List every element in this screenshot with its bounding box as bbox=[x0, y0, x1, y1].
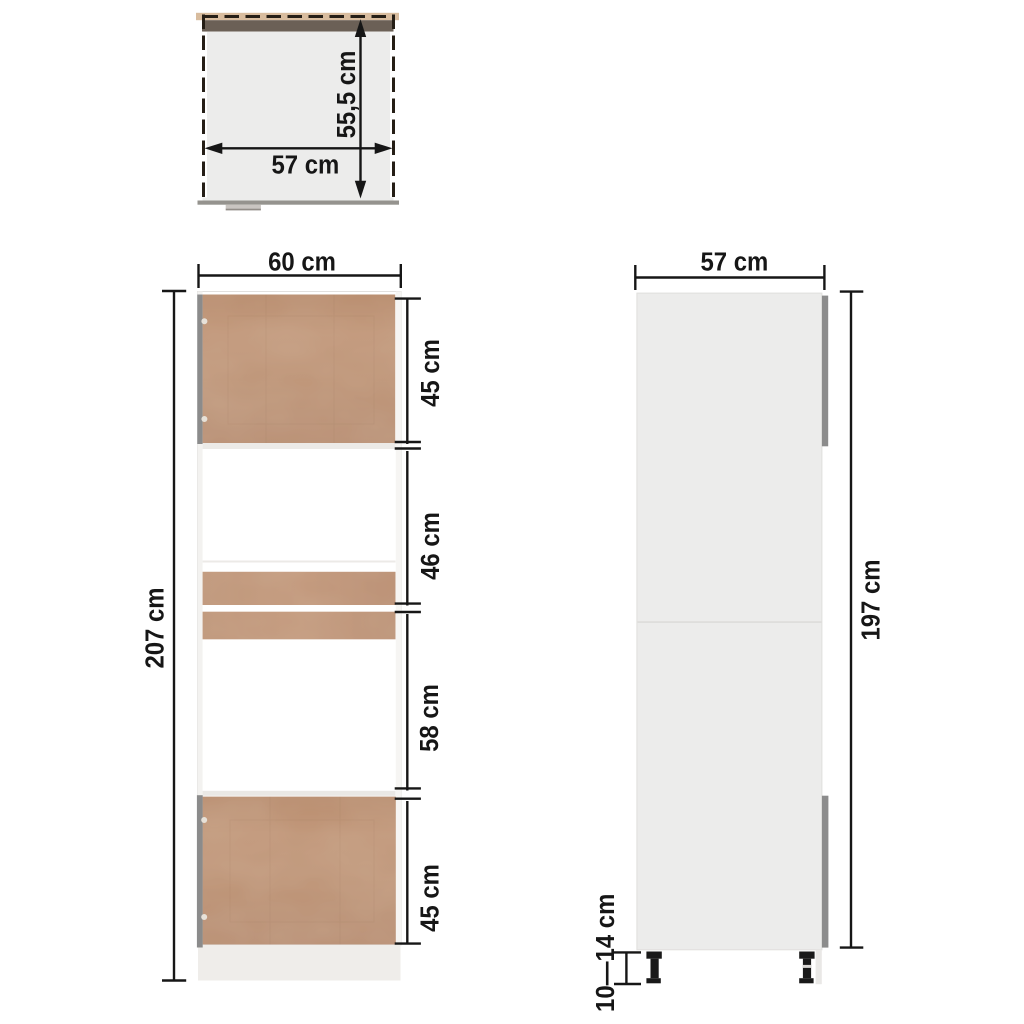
svg-text:197 cm: 197 cm bbox=[857, 559, 886, 640]
svg-text:46 cm: 46 cm bbox=[416, 512, 445, 580]
svg-text:57 cm: 57 cm bbox=[271, 150, 339, 179]
svg-text:207 cm: 207 cm bbox=[141, 587, 170, 668]
svg-text:10—14 cm: 10—14 cm bbox=[591, 894, 620, 1012]
svg-text:45 cm: 45 cm bbox=[416, 864, 445, 932]
svg-text:45 cm: 45 cm bbox=[416, 339, 445, 407]
svg-text:60 cm: 60 cm bbox=[268, 248, 336, 277]
svg-text:57 cm: 57 cm bbox=[700, 248, 768, 277]
svg-text:55,5 cm: 55,5 cm bbox=[332, 51, 361, 139]
svg-text:58 cm: 58 cm bbox=[415, 684, 444, 752]
